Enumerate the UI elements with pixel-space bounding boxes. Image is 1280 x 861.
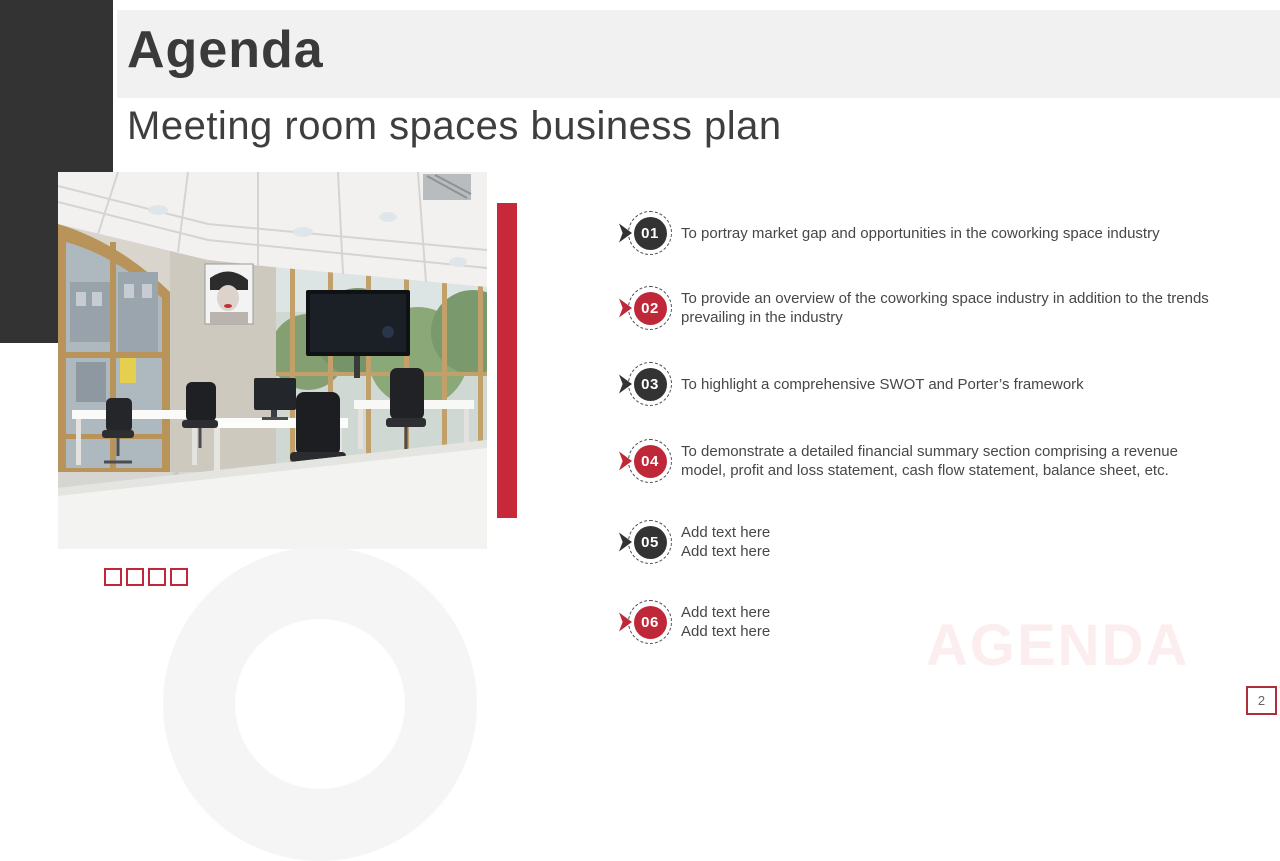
- ribbon-pointer-icon: [619, 533, 632, 552]
- agenda-number-badge: 05: [628, 520, 672, 564]
- agenda-number: 04: [634, 445, 667, 478]
- agenda-item-text: To highlight a comprehensive SWOT and Po…: [681, 375, 1084, 394]
- agenda-number-badge: 06: [628, 600, 672, 644]
- agenda-item-text: To portray market gap and opportunities …: [681, 224, 1160, 243]
- office-photo-illustration: [58, 172, 487, 549]
- page-number: 2: [1258, 693, 1265, 708]
- ribbon-pointer-icon: [619, 613, 632, 632]
- square-icon: [126, 568, 144, 586]
- ribbon-pointer-icon: [619, 375, 632, 394]
- agenda-number: 02: [634, 292, 667, 325]
- agenda-item-04: 04To demonstrate a detailed financial su…: [628, 437, 1178, 485]
- agenda-item-06: 06Add text here Add text here: [628, 598, 770, 646]
- slide-title: Agenda: [127, 20, 324, 80]
- agenda-number-badge: 01: [628, 211, 672, 255]
- agenda-item-text: Add text here Add text here: [681, 523, 770, 561]
- agenda-number: 03: [634, 368, 667, 401]
- page-number-box: 2: [1246, 686, 1277, 715]
- ribbon-pointer-icon: [619, 224, 632, 243]
- square-icon: [148, 568, 166, 586]
- agenda-item-05: 05Add text here Add text here: [628, 518, 770, 566]
- agenda-item-02: 02To provide an overview of the coworkin…: [628, 284, 1209, 332]
- watermark-text: AGENDA: [926, 612, 1189, 679]
- wall-art: [205, 264, 253, 324]
- office-photo: [58, 172, 487, 549]
- agenda-item-text: To provide an overview of the coworking …: [681, 289, 1209, 327]
- background-ring-decoration: [163, 547, 477, 861]
- agenda-item-01: 01To portray market gap and opportunitie…: [628, 209, 1160, 257]
- agenda-number-badge: 02: [628, 286, 672, 330]
- red-accent-bar: [497, 203, 517, 518]
- decoration-squares: [104, 568, 188, 586]
- square-icon: [170, 568, 188, 586]
- agenda-item-text: To demonstrate a detailed financial summ…: [681, 442, 1178, 480]
- agenda-item-text: Add text here Add text here: [681, 603, 770, 641]
- agenda-number: 01: [634, 217, 667, 250]
- square-icon: [104, 568, 122, 586]
- ribbon-pointer-icon: [619, 452, 632, 471]
- agenda-number-badge: 03: [628, 362, 672, 406]
- agenda-number: 06: [634, 606, 667, 639]
- ribbon-pointer-icon: [619, 299, 632, 318]
- agenda-number-badge: 04: [628, 439, 672, 483]
- agenda-item-03: 03To highlight a comprehensive SWOT and …: [628, 360, 1084, 408]
- agenda-number: 05: [634, 526, 667, 559]
- slide-subtitle: Meeting room spaces business plan: [127, 104, 782, 149]
